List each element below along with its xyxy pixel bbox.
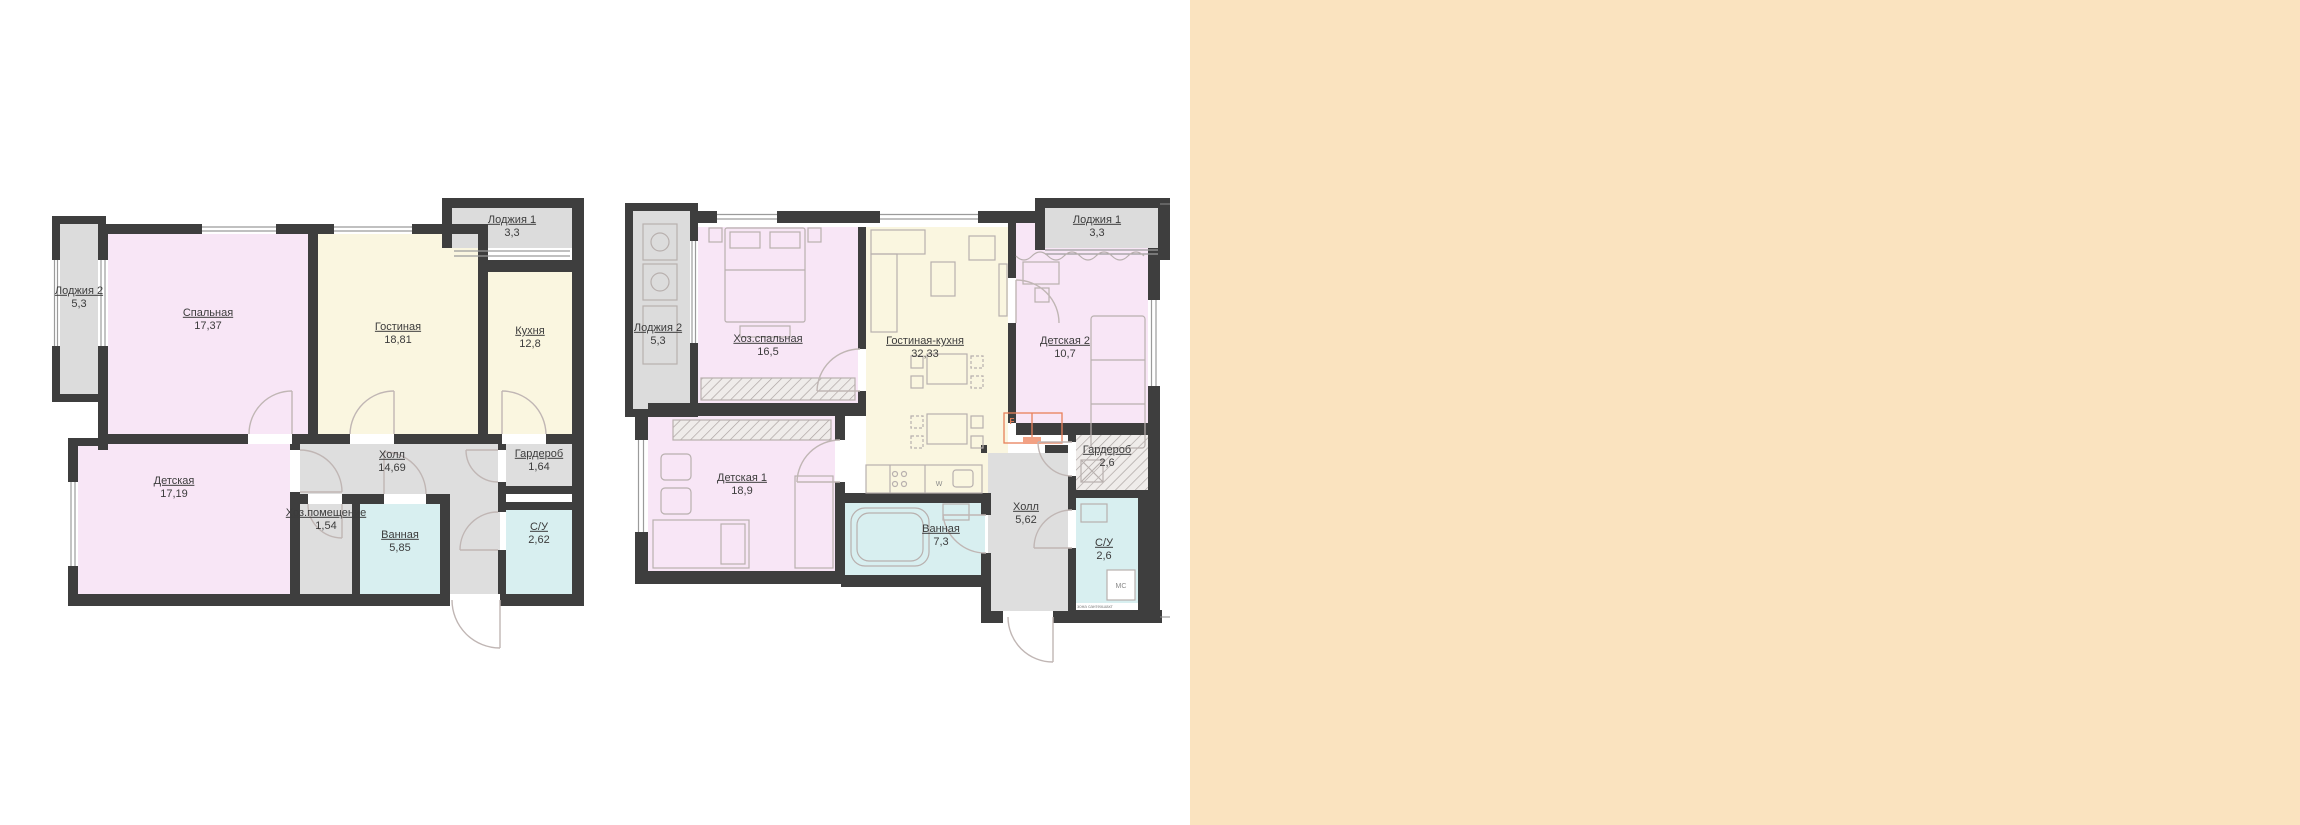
- wardrobe-icon: [673, 420, 831, 440]
- room-label-loggia2: Лоджия 25,3: [634, 322, 682, 348]
- room-label-gostinaya: Гостиная18,81: [375, 321, 421, 347]
- room-label-gostinaya-kuhnya: Гостиная-кухня32,33: [886, 335, 964, 361]
- side-panel: [1190, 0, 2300, 825]
- room-label-loggia1: Лоджия 13,3: [1073, 214, 1121, 240]
- room-label-vannaya: Ванная7,3: [922, 523, 960, 549]
- room-label-vannaya: Ванная5,85: [381, 529, 419, 555]
- room-label-hoz: Хоз.помещение1,54: [286, 507, 366, 533]
- fridge-mark: F: [1010, 417, 1015, 426]
- room-label-detskaya1: Детская 118,9: [717, 472, 767, 498]
- room-label-su: С/У2,62: [528, 521, 549, 547]
- washer-mark: МС: [1116, 583, 1127, 590]
- room-label-holl: Холл5,62: [1013, 501, 1039, 527]
- room-label-su: С/У2,6: [1095, 537, 1113, 563]
- room-label-loggia2: Лоджия 25,3: [55, 285, 103, 311]
- room-label-detskaya: Детская17,19: [154, 475, 195, 501]
- page: Лоджия 25,3 Спальная17,37 Гостиная18,81 …: [0, 0, 2300, 825]
- floor-plan-left: Лоджия 25,3 Спальная17,37 Гостиная18,81 …: [52, 198, 597, 663]
- room-label-garderob: Гардероб2,6: [1083, 444, 1131, 470]
- room-label-holl: Холл14,69: [378, 449, 406, 475]
- floor-plan-right: W МС F зона сантехшахт Лоджия 25,3 Хоз.с…: [625, 198, 1170, 663]
- wardrobe-icon: [701, 378, 855, 400]
- floor-plan-right-drawing: W МС F зона сантехшахт: [625, 198, 1170, 663]
- dimension-ticks: [1160, 199, 1170, 622]
- shaft-note: зона сантехшахт: [1077, 604, 1114, 609]
- room-label-kuhnya: Кухня12,8: [515, 325, 544, 351]
- room-label-loggia1: Лоджия 13,3: [488, 214, 536, 240]
- floor-plan-left-drawing: [52, 198, 597, 663]
- room-label-hoz-spalnaya: Хоз.спальная16,5: [733, 333, 802, 359]
- sink-mark: W: [936, 481, 943, 488]
- room-label-garderob: Гардероб1,64: [515, 448, 563, 474]
- room-label-detskaya2: Детская 210,7: [1040, 335, 1090, 361]
- room-label-spalnaya: Спальная17,37: [183, 307, 233, 333]
